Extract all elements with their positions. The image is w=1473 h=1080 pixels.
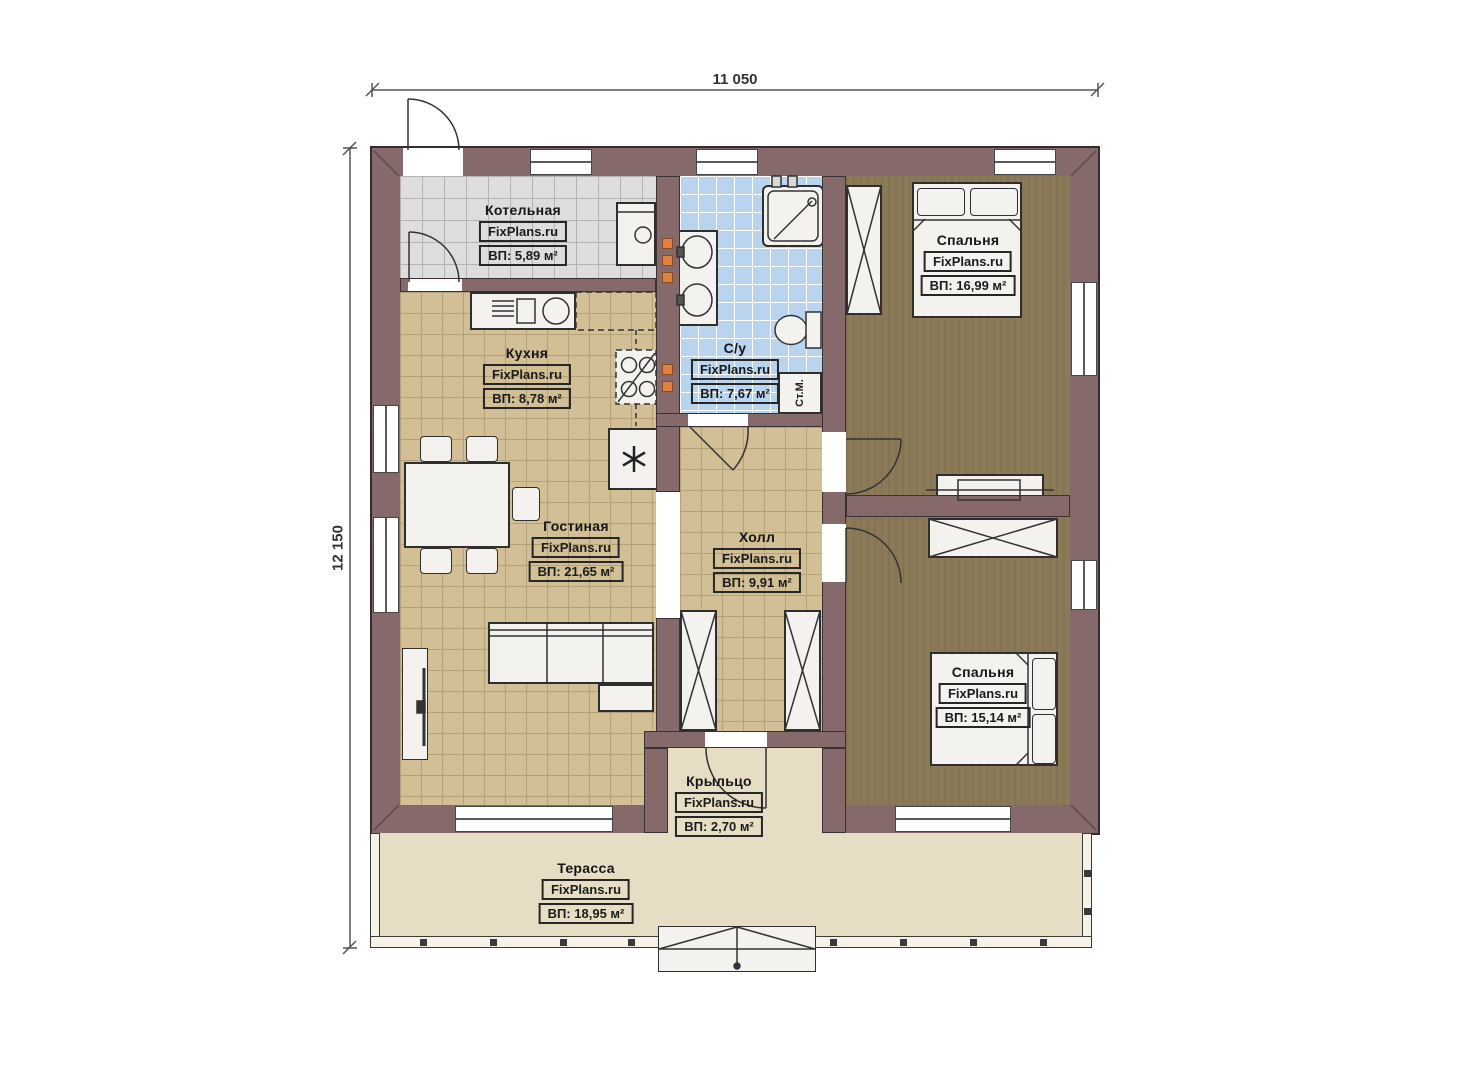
railing-post xyxy=(490,939,497,946)
door-opening xyxy=(408,279,462,291)
riser-marker xyxy=(662,364,673,375)
area-box: ВП: 16,99 м² xyxy=(921,275,1016,296)
room-label-bedroom2: Спальня FixPlans.ru ВП: 15,14 м² xyxy=(936,664,1031,728)
floor-plan-canvas: 11 050 12 150 Ст.М. xyxy=(0,0,1473,1080)
brand-box: FixPlans.ru xyxy=(924,251,1012,272)
terrace-railing-right xyxy=(1082,833,1092,946)
door-opening xyxy=(403,148,463,176)
boiler-unit xyxy=(616,202,656,266)
brand-box: FixPlans.ru xyxy=(939,683,1027,704)
window xyxy=(696,149,758,175)
terrace-floor xyxy=(374,833,1090,938)
sink-counter xyxy=(678,230,718,326)
railing-post xyxy=(1084,870,1091,877)
tv-stand xyxy=(402,648,428,760)
railing-post xyxy=(628,939,635,946)
area-box: ВП: 8,78 м² xyxy=(483,388,571,409)
riser-marker xyxy=(662,381,673,392)
brand-box: FixPlans.ru xyxy=(542,879,630,900)
area-box: ВП: 7,67 м² xyxy=(691,383,779,404)
porch-side-wall xyxy=(644,748,668,833)
riser-marker xyxy=(662,255,673,266)
room-label-kitchen: Кухня FixPlans.ru ВП: 8,78 м² xyxy=(483,345,571,409)
terrace-steps xyxy=(658,926,816,972)
brand-box: FixPlans.ru xyxy=(483,364,571,385)
wardrobe xyxy=(784,610,821,731)
room-name: Терасса xyxy=(557,860,615,876)
area-box: ВП: 21,65 м² xyxy=(529,561,624,582)
dimension-height-label: 12 150 xyxy=(330,525,347,571)
railing-post xyxy=(1040,939,1047,946)
passage-opening xyxy=(656,492,680,618)
pillow xyxy=(970,188,1018,216)
chair xyxy=(512,487,540,521)
room-name: С/у xyxy=(724,340,747,356)
window xyxy=(373,405,399,473)
interior-wall xyxy=(656,413,846,427)
window xyxy=(455,806,613,832)
area-box: ВП: 2,70 м² xyxy=(675,816,763,837)
pillow xyxy=(1032,714,1056,764)
area-box: ВП: 18,95 м² xyxy=(539,903,634,924)
door-opening xyxy=(688,414,748,426)
room-label-bathroom: С/у FixPlans.ru ВП: 7,67 м² xyxy=(691,340,779,404)
railing-post xyxy=(970,939,977,946)
wardrobe xyxy=(680,610,717,731)
room-label-bedroom1: Спальня FixPlans.ru ВП: 16,99 м² xyxy=(921,232,1016,296)
riser-marker xyxy=(662,238,673,249)
interior-wall xyxy=(656,176,680,492)
fridge-niche xyxy=(608,428,660,490)
terrace-railing-left xyxy=(370,833,380,946)
window xyxy=(530,149,592,175)
railing-post xyxy=(420,939,427,946)
room-label-hall: Холл FixPlans.ru ВП: 9,91 м² xyxy=(713,529,801,593)
door-opening xyxy=(822,524,846,582)
area-box: ВП: 5,89 м² xyxy=(479,245,567,266)
room-label-boiler: Котельная FixPlans.ru ВП: 5,89 м² xyxy=(479,202,567,266)
chair xyxy=(466,436,498,462)
pillow xyxy=(917,188,965,216)
sofa xyxy=(488,622,654,684)
pillow xyxy=(1032,658,1056,710)
railing-post xyxy=(560,939,567,946)
room-name: Холл xyxy=(739,529,775,545)
room-name: Спальня xyxy=(952,664,1015,680)
dining-table xyxy=(404,462,510,548)
wardrobe xyxy=(928,518,1058,558)
railing-post xyxy=(1084,908,1091,915)
room-name: Крыльцо xyxy=(686,773,752,789)
room-name: Спальня xyxy=(937,232,1000,248)
area-box: ВП: 15,14 м² xyxy=(936,707,1031,728)
chair xyxy=(420,436,452,462)
stove-niche xyxy=(616,350,656,404)
window xyxy=(1071,282,1097,376)
brand-box: FixPlans.ru xyxy=(675,792,763,813)
room-name: Котельная xyxy=(485,202,561,218)
entry-door-opening xyxy=(705,732,767,747)
riser-marker xyxy=(662,272,673,283)
brand-box: FixPlans.ru xyxy=(479,221,567,242)
room-label-porch: Крыльцо FixPlans.ru ВП: 2,70 м² xyxy=(675,773,763,837)
interior-wall xyxy=(656,618,680,748)
window xyxy=(895,806,1011,832)
brand-box: FixPlans.ru xyxy=(713,548,801,569)
room-name: Гостиная xyxy=(543,518,609,534)
window xyxy=(373,517,399,613)
kitchen-counter xyxy=(470,292,576,330)
wardrobe xyxy=(846,185,882,315)
interior-wall xyxy=(846,495,1070,517)
room-label-living: Гостиная FixPlans.ru ВП: 21,65 м² xyxy=(529,518,624,582)
chair xyxy=(420,548,452,574)
brand-box: FixPlans.ru xyxy=(691,359,779,380)
railing-post xyxy=(830,939,837,946)
shower xyxy=(762,185,824,247)
chair xyxy=(466,548,498,574)
dimension-width-label: 11 050 xyxy=(712,71,757,88)
room-label-terrace: Терасса FixPlans.ru ВП: 18,95 м² xyxy=(539,860,634,924)
area-box: ВП: 9,91 м² xyxy=(713,572,801,593)
sofa-chaise xyxy=(598,684,654,712)
door-opening xyxy=(822,432,846,492)
room-name: Кухня xyxy=(506,345,548,361)
brand-box: FixPlans.ru xyxy=(532,537,620,558)
washing-machine-label: Ст.М. xyxy=(794,379,806,407)
window xyxy=(1071,560,1097,610)
window xyxy=(994,149,1056,175)
porch-side-wall xyxy=(822,748,846,833)
railing-post xyxy=(900,939,907,946)
